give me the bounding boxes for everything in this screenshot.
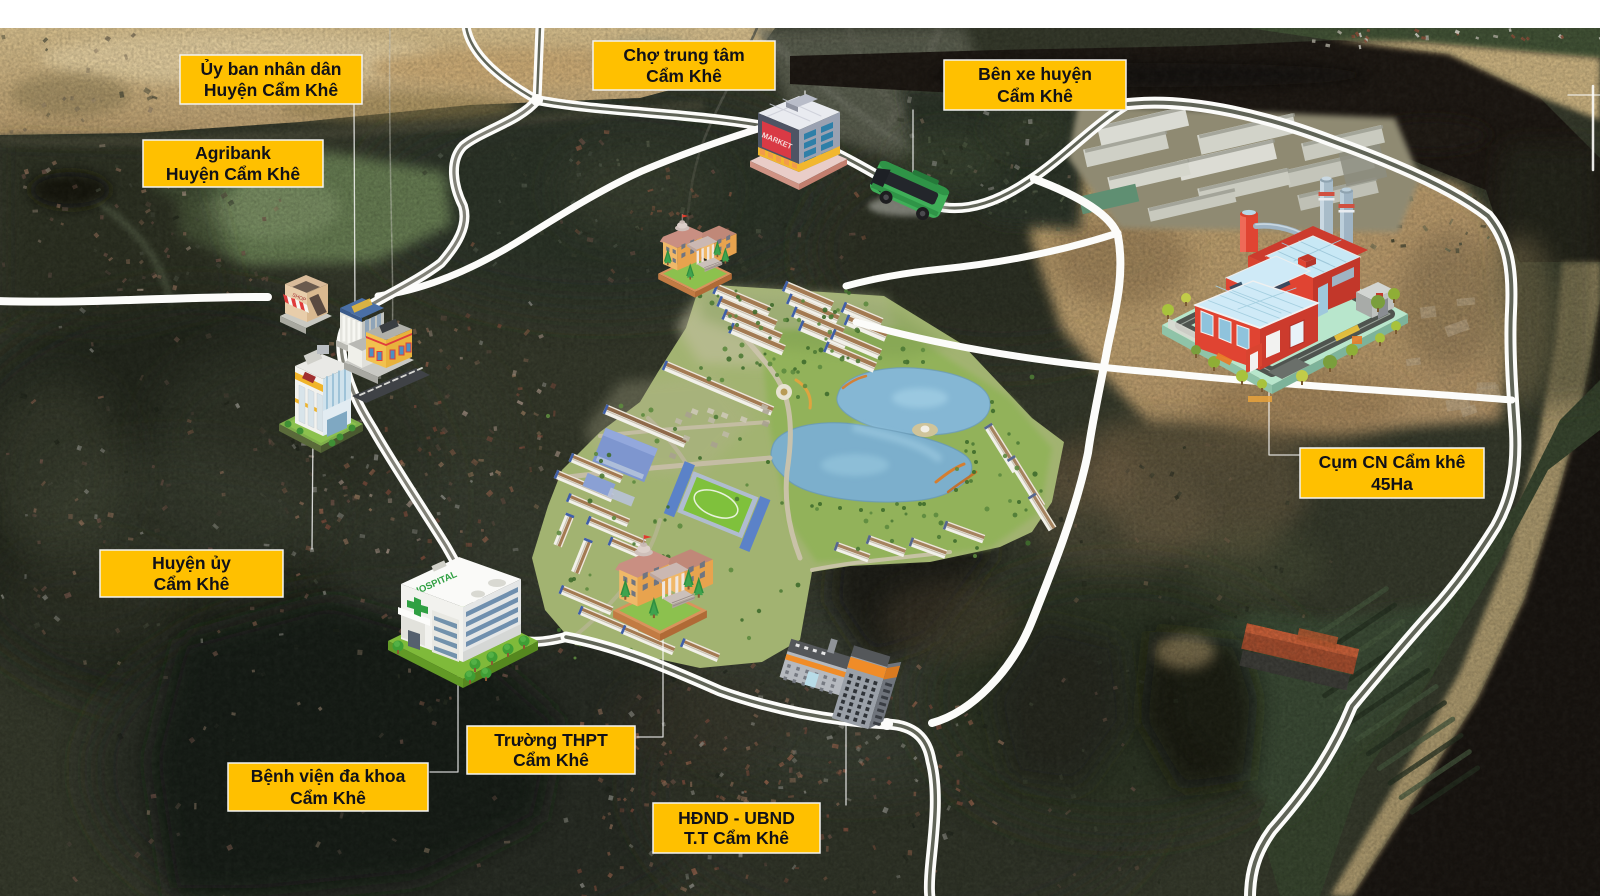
svg-text:Cẩm Khê: Cẩm Khê [513, 750, 589, 770]
svg-text:HĐND - UBND: HĐND - UBND [678, 808, 795, 828]
svg-text:Ủy ban nhân dân: Ủy ban nhân dân [201, 58, 342, 79]
svg-text:Bên xe huyện: Bên xe huyện [978, 64, 1092, 84]
svg-text:Cẩm Khê: Cẩm Khê [154, 574, 230, 594]
svg-text:Bệnh viện đa khoa: Bệnh viện đa khoa [251, 766, 406, 786]
svg-text:Huyện Cẩm Khê: Huyện Cẩm Khê [204, 80, 338, 100]
svg-text:45Ha: 45Ha [1371, 474, 1413, 494]
svg-text:Chợ trung tâm: Chợ trung tâm [623, 45, 744, 65]
svg-text:Agribank: Agribank [195, 143, 271, 163]
svg-text:Trường THPT: Trường THPT [494, 730, 608, 750]
svg-text:Cẩm Khê: Cẩm Khê [997, 86, 1073, 106]
svg-text:Huyện Cẩm Khê: Huyện Cẩm Khê [166, 164, 300, 184]
svg-text:Huyện ủy: Huyện ủy [152, 553, 231, 573]
svg-text:Cẩm Khê: Cẩm Khê [646, 66, 722, 86]
svg-text:T.T Cẩm Khê: T.T Cẩm Khê [684, 828, 789, 848]
svg-text:Cụm CN Cẩm khê: Cụm CN Cẩm khê [1319, 452, 1466, 472]
svg-text:Cẩm Khê: Cẩm Khê [290, 788, 366, 808]
